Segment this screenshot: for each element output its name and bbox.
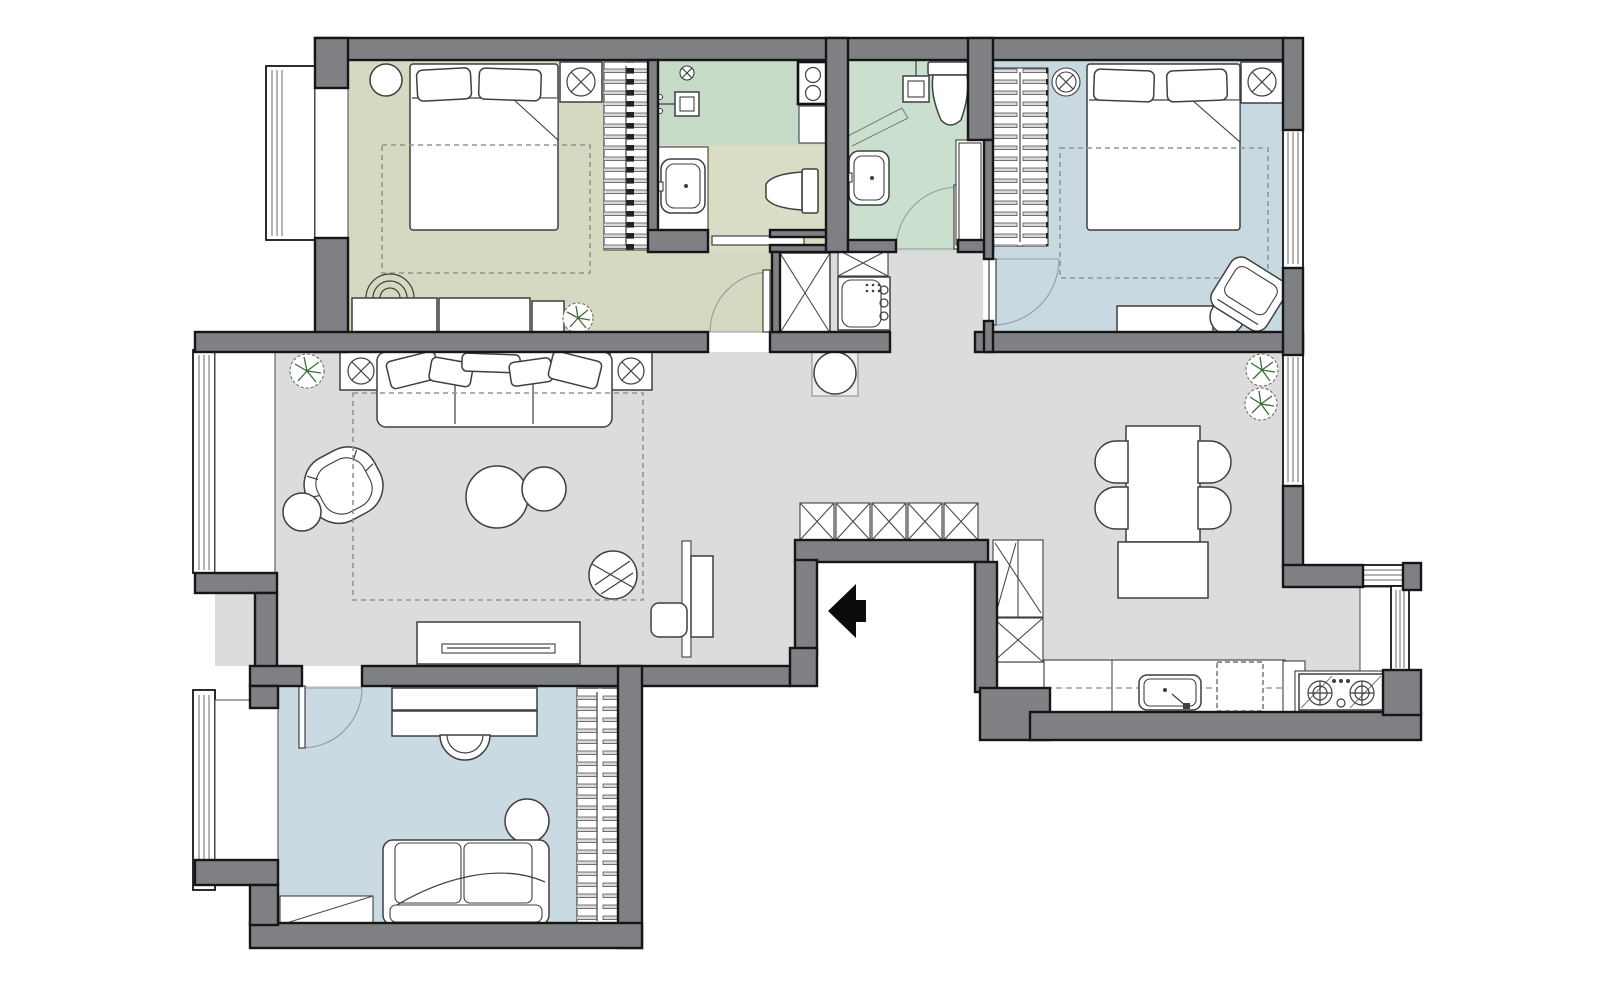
- wall-top: [315, 38, 1285, 60]
- wall-right: [1283, 268, 1303, 355]
- wall: [770, 332, 890, 352]
- tall-larder-cabinet: [993, 540, 1043, 617]
- wall: [250, 686, 278, 708]
- entry-arrow-icon: [828, 584, 866, 638]
- dishwasher: [1217, 662, 1263, 711]
- ceiling-lamp-icon: [340, 352, 382, 390]
- wall: [984, 321, 993, 352]
- wall-entry-left: [795, 560, 817, 655]
- wall: [848, 240, 896, 252]
- wall: [1383, 670, 1421, 715]
- pillow: [478, 68, 541, 101]
- bedroom-1-bay-window: [266, 66, 348, 240]
- dining-window: [1283, 353, 1303, 486]
- study-door-leaf: [299, 686, 305, 748]
- ceiling-lamp-icon: [1241, 62, 1284, 103]
- coffee-table-large: [466, 466, 528, 528]
- wardrobe-hangers: [604, 62, 648, 250]
- entry-closets: [800, 503, 978, 540]
- bedroom-1-door-leaf: [763, 270, 770, 332]
- wardrobe-hangers: [993, 68, 1048, 246]
- wall: [195, 860, 278, 885]
- ceiling-lamp-icon: [610, 352, 652, 390]
- sink-icon: [845, 151, 889, 205]
- floor-plan-canvas: [0, 0, 1600, 995]
- bedroom-2-window: [1283, 128, 1303, 268]
- plant-icon: [290, 354, 324, 388]
- wardrobe-hangers: [577, 688, 618, 925]
- bedroom-2-door-leaf: [989, 259, 996, 325]
- pillow: [416, 68, 472, 102]
- wall-right: [1283, 486, 1303, 568]
- low-dresser: [532, 301, 564, 333]
- kitchen-counter: [1044, 660, 1285, 712]
- ceiling-lamp-icon: [680, 66, 694, 80]
- wall-bottom-right: [1030, 712, 1421, 740]
- wall: [195, 332, 708, 352]
- sideboard: [1118, 542, 1208, 598]
- wall-right: [1283, 38, 1303, 130]
- cushion: [395, 843, 461, 903]
- ball-side-table: [283, 493, 321, 531]
- gas-stove-icon: [1295, 671, 1387, 712]
- nightstand: [370, 64, 402, 96]
- closet-box: [993, 618, 1043, 662]
- kitchen-bay-window: [1358, 565, 1409, 672]
- round-table: [505, 799, 549, 843]
- corner-shelf: [280, 896, 373, 925]
- wall: [968, 38, 993, 140]
- wall: [648, 230, 708, 252]
- wall: [1283, 565, 1363, 587]
- double-bed: [410, 64, 558, 230]
- wall: [984, 140, 993, 259]
- sofa-back: [390, 905, 542, 922]
- wall-thin: [772, 252, 780, 332]
- two-seat-sofa: [383, 840, 549, 925]
- wall: [790, 648, 817, 686]
- pillow: [1093, 69, 1154, 102]
- living-room-bay-window: [193, 350, 275, 573]
- sink-icon: [656, 159, 705, 213]
- wall-entry-right: [975, 562, 997, 692]
- storage-column: [956, 140, 984, 245]
- floor-plan-svg: [0, 0, 1600, 995]
- dining-table: [1126, 426, 1200, 542]
- low-dresser: [352, 298, 437, 333]
- wall: [648, 60, 658, 232]
- ceiling-lamp-icon: [560, 62, 602, 102]
- wall: [195, 573, 277, 593]
- faucet-icon: [1183, 703, 1190, 709]
- wall: [362, 666, 790, 686]
- coffee-table-small: [522, 467, 566, 511]
- wall-bottom-left: [250, 923, 642, 948]
- tv-console: [417, 622, 580, 664]
- pillow: [1166, 69, 1227, 102]
- wall: [1403, 563, 1421, 590]
- kitchen-sink-icon: [1139, 675, 1201, 710]
- washer-column-icon: [798, 62, 828, 143]
- appliance-column: [838, 250, 890, 330]
- wall: [250, 666, 302, 686]
- round-hall-table: [812, 350, 858, 396]
- double-bed: [1087, 64, 1240, 230]
- hall-closet: [780, 253, 830, 333]
- pillow: [509, 357, 554, 387]
- low-dresser: [439, 298, 530, 333]
- tv-stand: [1117, 306, 1213, 332]
- desk-chair: [651, 603, 687, 637]
- sofa: [377, 350, 612, 427]
- round-ceiling-lamp-icon: [1052, 68, 1080, 96]
- wall: [975, 332, 1303, 352]
- wall: [255, 593, 277, 668]
- striped-pouf: [589, 551, 637, 599]
- plant-icon: [563, 303, 593, 333]
- plant-icon: [1245, 388, 1277, 420]
- wall: [618, 666, 642, 948]
- wall: [315, 38, 348, 88]
- plant-icon: [1246, 354, 1278, 386]
- wall: [250, 885, 278, 925]
- wall: [826, 38, 848, 252]
- wall: [795, 540, 988, 562]
